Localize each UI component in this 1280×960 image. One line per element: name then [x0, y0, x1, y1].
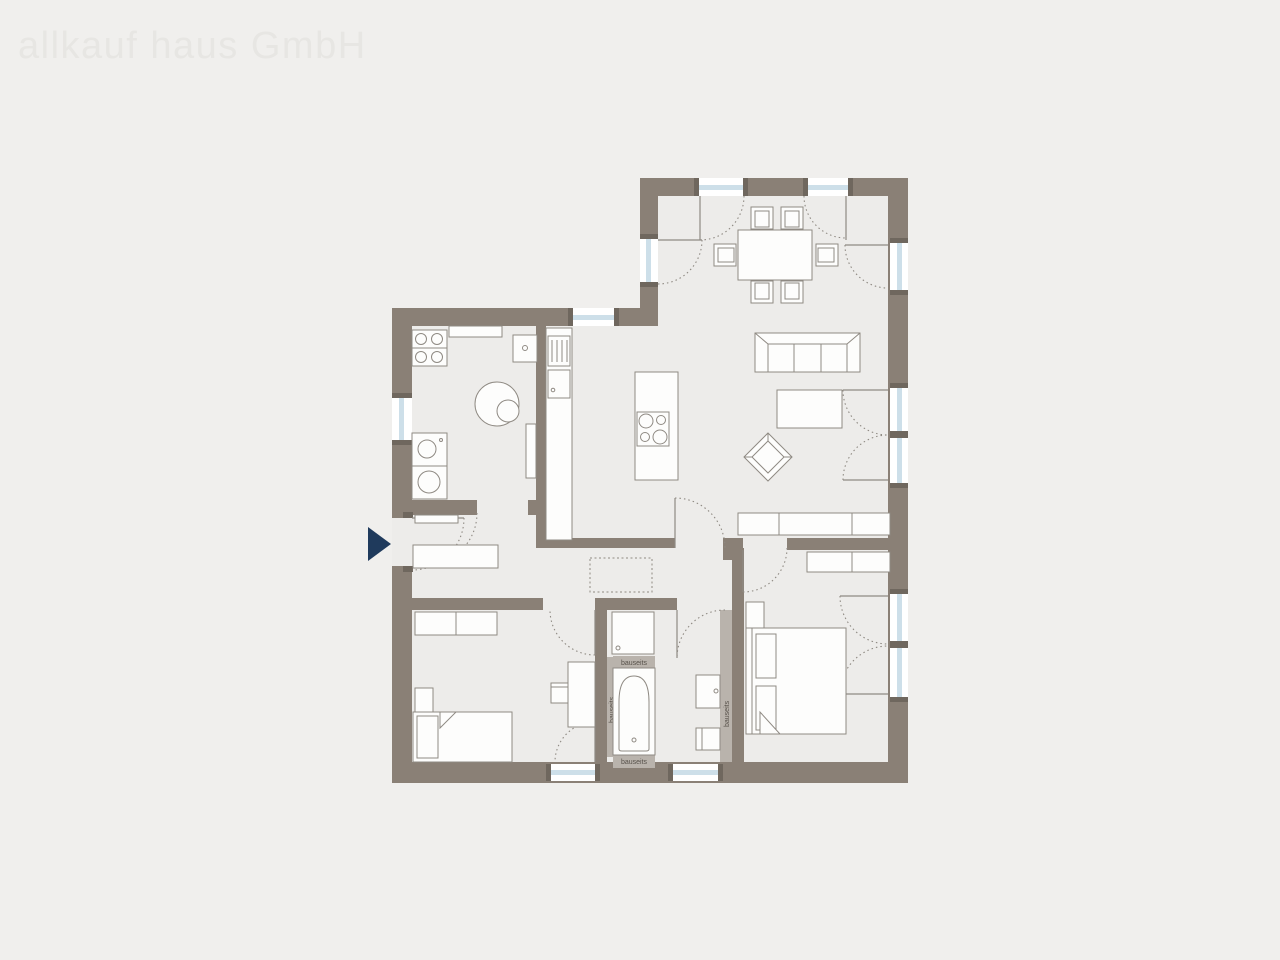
dining-table	[738, 230, 812, 280]
hall-wardrobe	[413, 545, 498, 568]
wall-utility-south-end	[528, 500, 546, 515]
kitchen-counter	[546, 328, 572, 540]
watermark-text: allkauf haus GmbH	[18, 25, 367, 67]
utility-tall-cabinet	[526, 424, 536, 478]
washing-machine	[412, 433, 447, 466]
utility-worktable	[513, 335, 537, 362]
wall-utility-south	[412, 500, 477, 515]
utility-shelf	[449, 326, 502, 337]
living-sideboard	[738, 513, 890, 535]
entrance-opening	[392, 518, 412, 566]
desk-chair	[551, 683, 568, 703]
bauseits-label-bottom: bauseits	[621, 759, 648, 766]
toilet	[696, 728, 720, 750]
kitchen-island	[635, 372, 678, 480]
child-wardrobe	[415, 612, 497, 635]
boiler-tank	[475, 382, 519, 426]
utility-cooktop	[412, 330, 447, 366]
onsite-strip-right	[720, 610, 732, 762]
utility-window	[392, 393, 412, 445]
dryer	[412, 466, 447, 499]
sofa	[755, 333, 860, 372]
wall-bedroom-west	[732, 548, 744, 762]
hall-bench	[415, 515, 458, 523]
wall-bath-north	[595, 598, 677, 610]
floor-plan-canvas: allkauf haus GmbH bauseits bauseits baus…	[0, 0, 1280, 960]
wall-childroom-east	[595, 610, 607, 762]
bath-window	[668, 764, 723, 781]
entrance-arrow-icon	[368, 527, 391, 561]
double-bed	[746, 628, 846, 734]
wall-childroom-north	[412, 598, 543, 610]
bauseits-label-top: bauseits	[621, 660, 648, 667]
bathtub	[613, 668, 655, 755]
bauseits-label-right: bauseits	[724, 700, 731, 727]
kitchen-north-window	[568, 308, 619, 326]
child-bed	[413, 712, 512, 762]
child-nightstand	[415, 688, 433, 712]
kitchen-appliance	[548, 370, 570, 398]
shower	[612, 612, 654, 654]
bedroom-cabinet	[746, 602, 764, 630]
coffee-table	[777, 390, 842, 428]
wall-bedroom-north	[787, 538, 888, 550]
washbasin	[696, 675, 720, 708]
bedroom-sideboard	[807, 552, 890, 572]
desk	[568, 662, 595, 727]
